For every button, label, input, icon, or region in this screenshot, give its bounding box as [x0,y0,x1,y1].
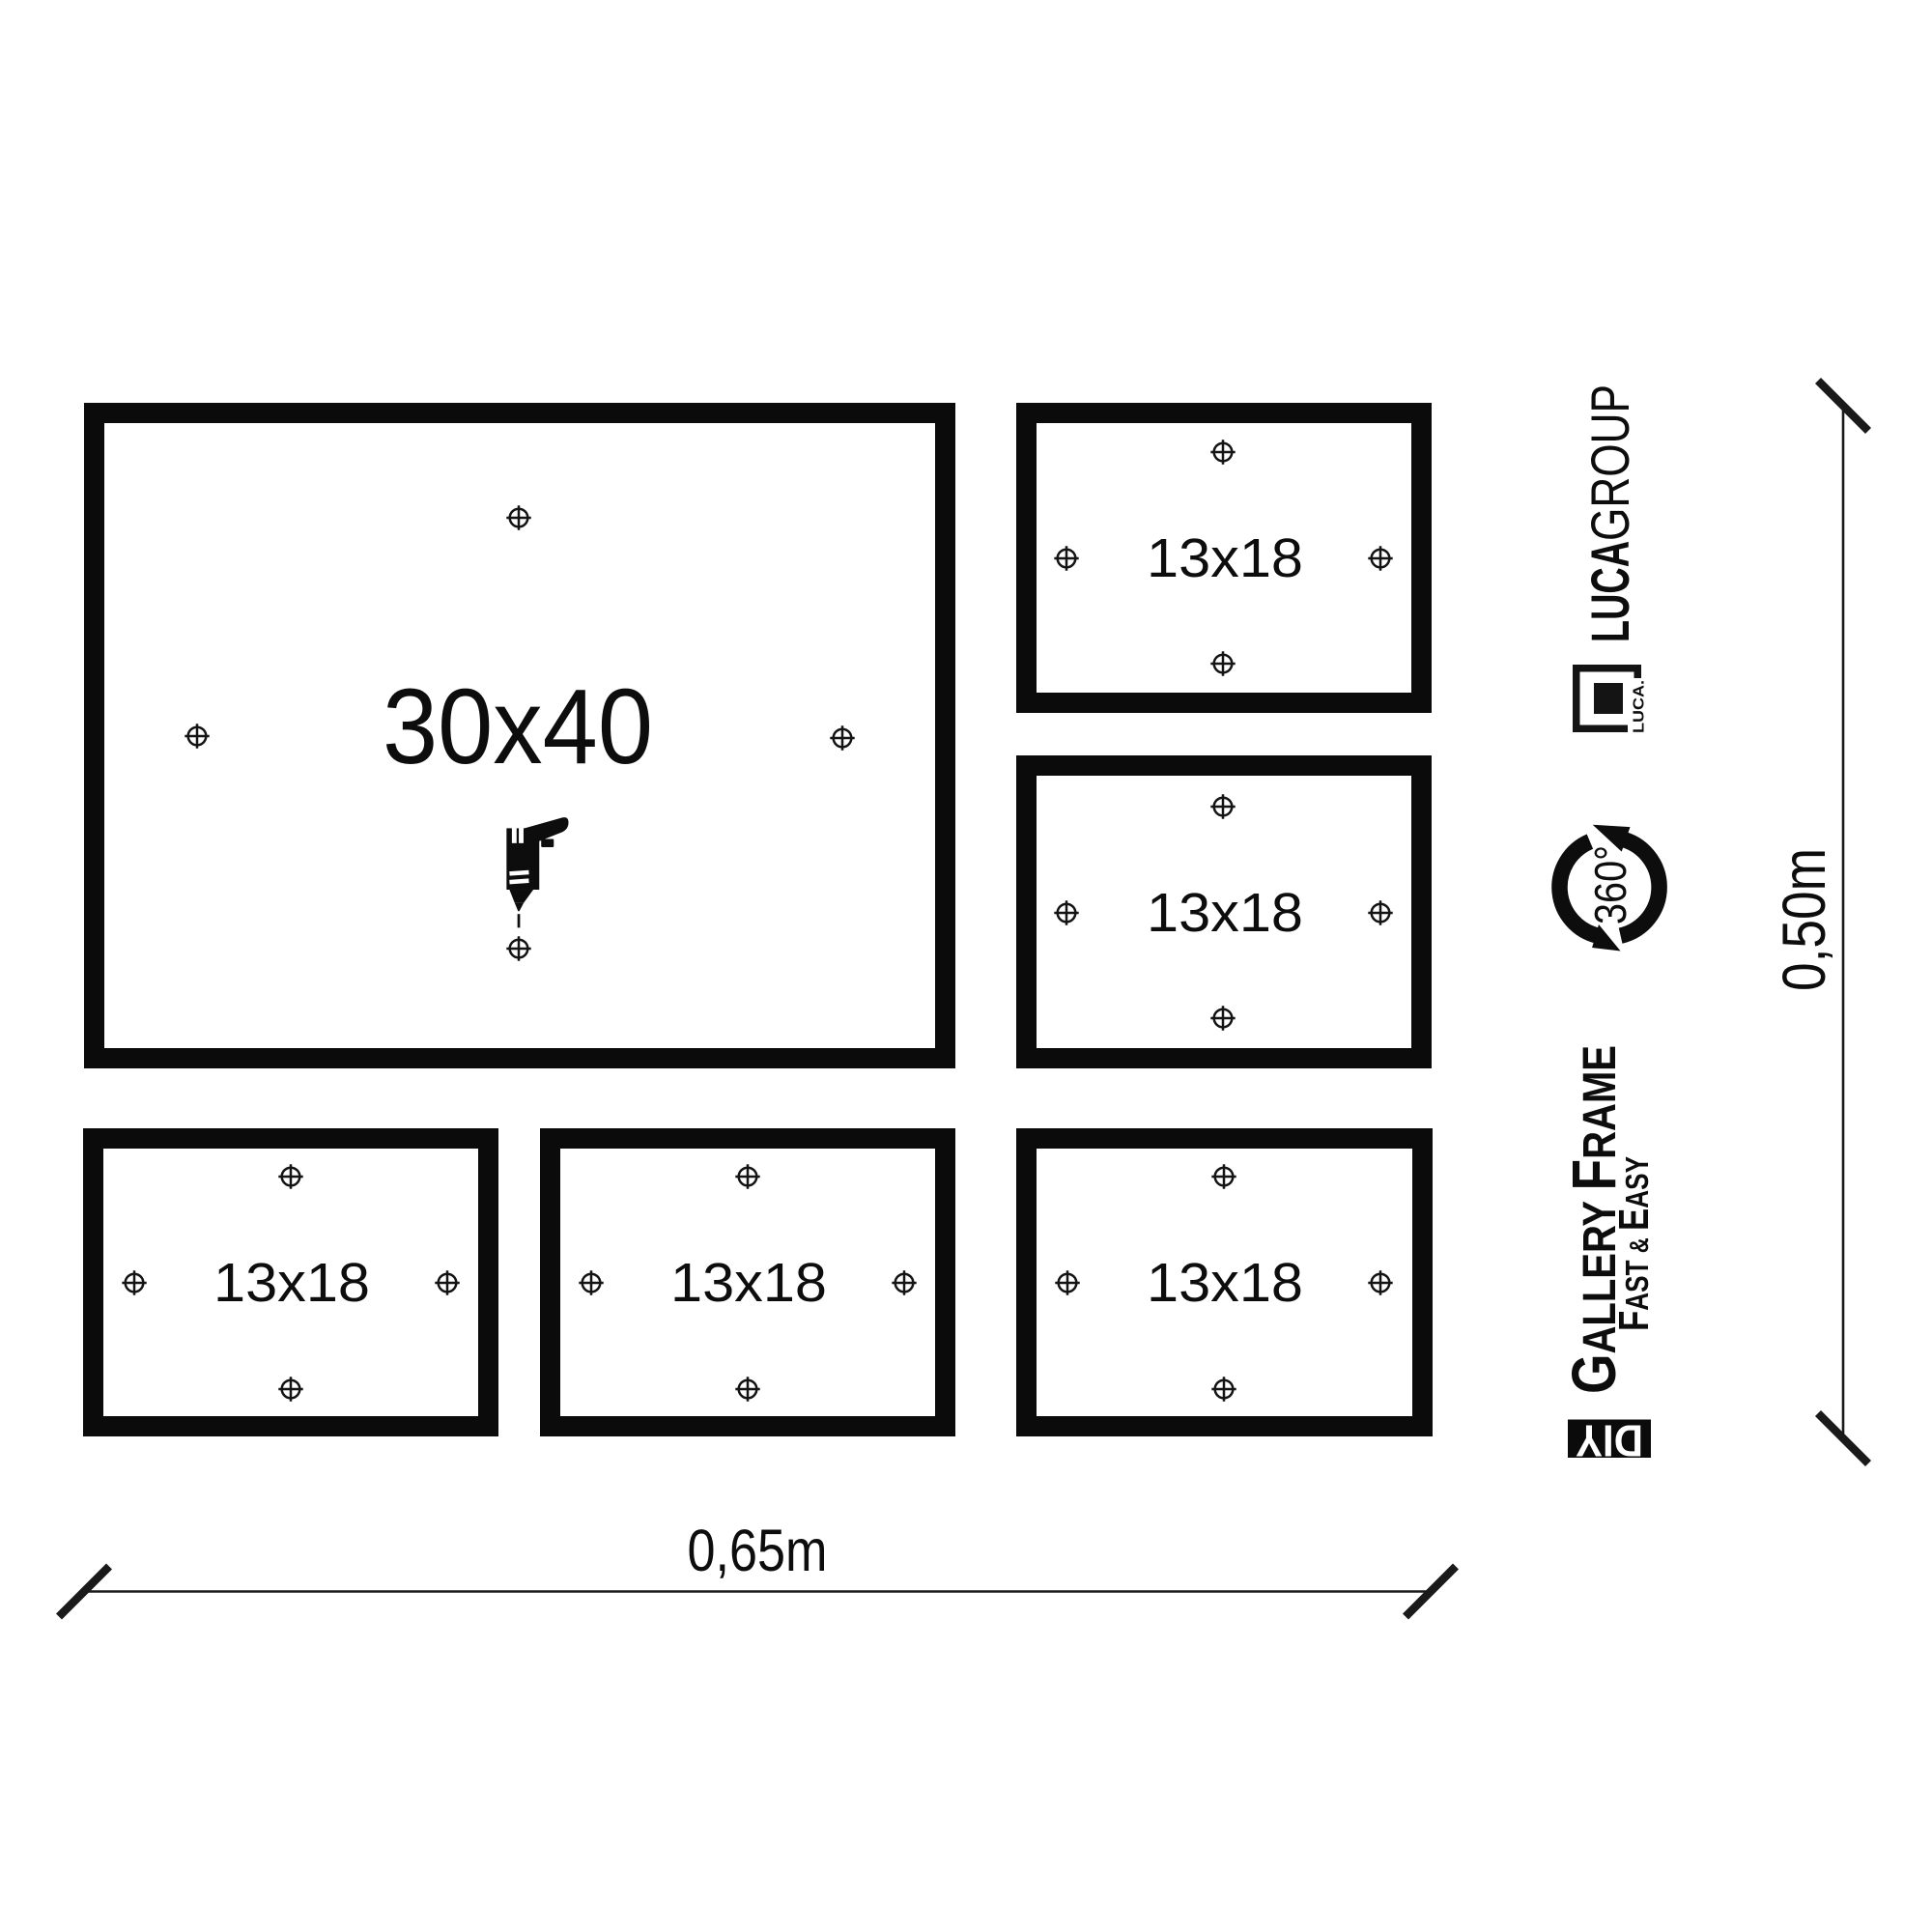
svg-text:30x40: 30x40 [383,668,653,786]
svg-text:360°: 360° [1585,845,1635,924]
svg-text:LUCA.: LUCA. [1632,680,1648,733]
svg-text:13x18: 13x18 [213,1252,370,1314]
svg-text:13x18: 13x18 [1147,882,1303,944]
svg-text:13x18: 13x18 [1147,1252,1303,1314]
svg-text:GROUP: GROUP [1579,384,1640,541]
svg-text:13x18: 13x18 [670,1252,827,1314]
svg-text:13x18: 13x18 [1147,527,1303,589]
svg-text:0,50m: 0,50m [1771,848,1838,991]
svg-text:LUCA: LUCA [1579,541,1640,642]
svg-text:DIY: DIY [1576,1416,1643,1466]
svg-text:0,65m: 0,65m [688,1518,828,1583]
